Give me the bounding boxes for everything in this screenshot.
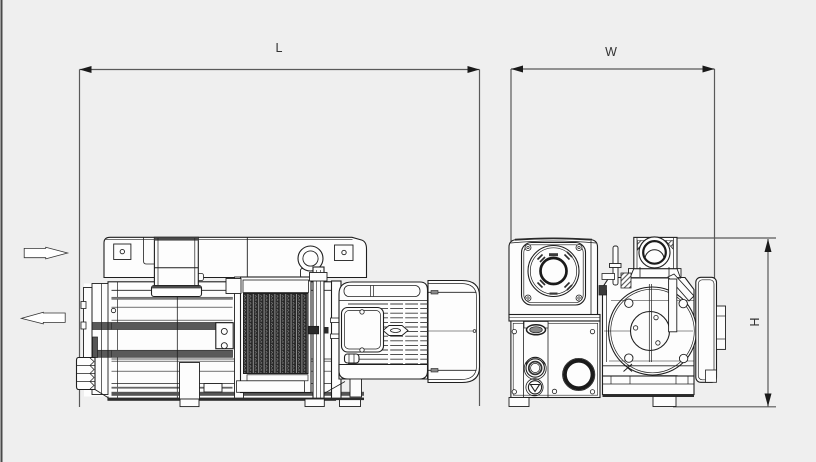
svg-text:H: H	[747, 317, 761, 326]
svg-text:L: L	[276, 41, 283, 55]
svg-text:W: W	[605, 45, 617, 59]
